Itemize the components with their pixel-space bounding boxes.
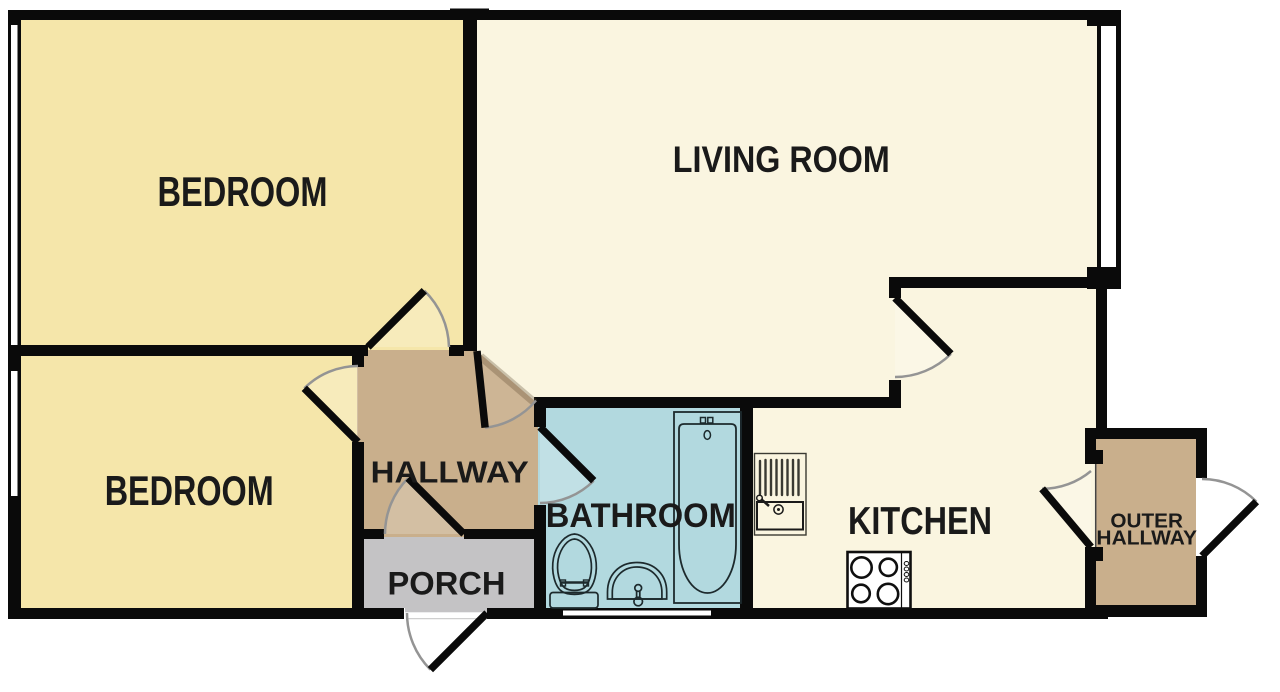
svg-text:BEDROOM: BEDROOM [105, 467, 274, 514]
svg-text:PORCH: PORCH [388, 565, 506, 601]
svg-text:HALLWAY: HALLWAY [371, 455, 529, 490]
svg-text:LIVING ROOM: LIVING ROOM [673, 138, 890, 180]
svg-text:BEDROOM: BEDROOM [158, 168, 328, 215]
svg-text:HALLWAY: HALLWAY [1096, 528, 1197, 550]
svg-text:KITCHEN: KITCHEN [848, 500, 992, 543]
svg-text:BATHROOM: BATHROOM [546, 497, 736, 535]
